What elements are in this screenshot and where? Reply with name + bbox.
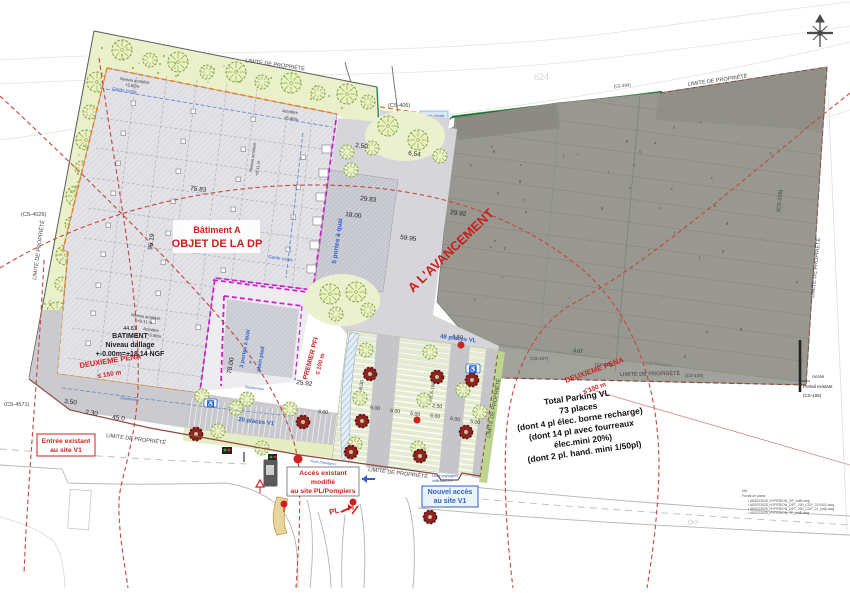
svg-text:♿: ♿ <box>469 365 478 374</box>
svg-text:infiltration EP: infiltration EP <box>432 479 454 483</box>
svg-text:(CS-4026): (CS-4026) <box>21 212 47 218</box>
svg-text:NB:: NB: <box>742 489 748 493</box>
svg-text:Nouvel accès: Nouvel accès <box>428 489 473 496</box>
svg-text:au site V1: au site V1 <box>434 498 467 505</box>
svg-text:Portail existant: Portail existant <box>803 384 833 389</box>
svg-text:Niveau dallage: Niveau dallage <box>105 342 154 349</box>
svg-text:au site V1: au site V1 <box>50 447 82 454</box>
svg-text:(CS-108): (CS-108) <box>595 362 614 367</box>
svg-text:(CS-106): (CS-106) <box>803 393 822 398</box>
svg-text:(CS-406): (CS-406) <box>388 103 410 109</box>
svg-text:6.00: 6.00 <box>390 408 401 415</box>
svg-text:6.00: 6.00 <box>430 413 441 420</box>
svg-text:OBJET DE LA DP: OBJET DE LA DP <box>172 238 263 250</box>
svg-text:5.00: 5.00 <box>470 419 481 426</box>
svg-text:Entrée existant: Entrée existant <box>42 438 91 445</box>
svg-text:+-0.00m=+18.14 NGF: +-0.00m=+18.14 NGF <box>96 351 165 358</box>
svg-text:624: 624 <box>534 72 549 82</box>
svg-text:• AB2023025_HYPERION_TF_indB.d: • AB2023025_HYPERION_TF_indB.dwg <box>748 511 809 515</box>
svg-text:Fonds de plans :: Fonds de plans : <box>742 494 767 498</box>
svg-text:LIMITE DE PROPRIÉTÉ: LIMITE DE PROPRIÉTÉ <box>620 370 681 378</box>
svg-text:(CS-107): (CS-107) <box>530 356 549 361</box>
svg-text:6.00: 6.00 <box>318 409 329 416</box>
svg-text:Accès existant: Accès existant <box>299 470 347 477</box>
svg-text:Accès: Accès <box>812 374 825 379</box>
svg-text:modifié: modifié <box>311 479 335 486</box>
svg-text:Noue paysagère: Noue paysagère <box>432 474 458 478</box>
svg-text:2.50: 2.50 <box>432 403 443 410</box>
svg-text:BATIMENT: BATIMENT <box>112 333 148 340</box>
svg-text:au site PL/Pompiers: au site PL/Pompiers <box>291 488 356 495</box>
svg-text:Bâtiment A: Bâtiment A <box>193 225 241 235</box>
svg-text:6.00: 6.00 <box>370 405 381 412</box>
svg-text:44.81: 44.81 <box>123 326 137 332</box>
svg-text:(CS-109): (CS-109) <box>685 373 704 378</box>
svg-text:3.07: 3.07 <box>573 348 584 355</box>
svg-text:♿: ♿ <box>206 400 214 408</box>
svg-text:(CS-4571): (CS-4571) <box>4 402 30 408</box>
svg-text:6.00: 6.00 <box>450 416 461 423</box>
